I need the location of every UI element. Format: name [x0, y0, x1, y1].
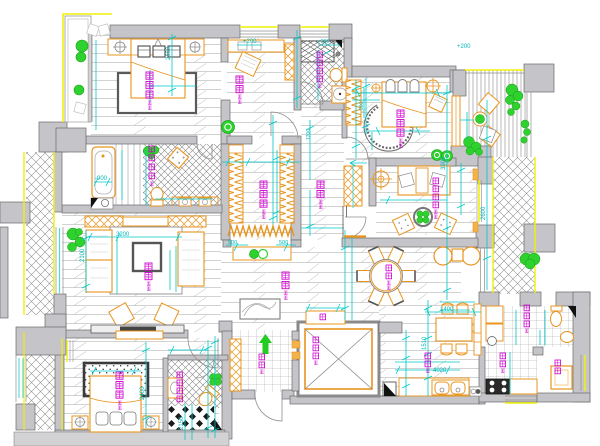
svg-text:+200: +200	[457, 44, 471, 50]
svg-text:3900: 3900	[441, 156, 447, 170]
svg-text:4020: 4020	[433, 368, 447, 374]
svg-text:2150: 2150	[179, 416, 185, 430]
svg-text:1400: 1400	[440, 307, 454, 313]
svg-text:900: 900	[359, 101, 365, 110]
svg-text:+200: +200	[243, 39, 257, 45]
svg-text:2100: 2100	[166, 46, 172, 60]
svg-text:500: 500	[228, 240, 237, 246]
svg-text:+200: +200	[318, 39, 329, 45]
svg-text:3200: 3200	[116, 232, 130, 238]
svg-text:1510: 1510	[422, 336, 428, 350]
svg-text:500: 500	[279, 240, 288, 246]
svg-text:1200: 1200	[306, 129, 312, 140]
svg-text:2600: 2600	[481, 206, 487, 220]
svg-text:2100: 2100	[80, 248, 86, 262]
svg-text:2400: 2400	[140, 386, 146, 400]
svg-text:-900: -900	[95, 176, 108, 182]
